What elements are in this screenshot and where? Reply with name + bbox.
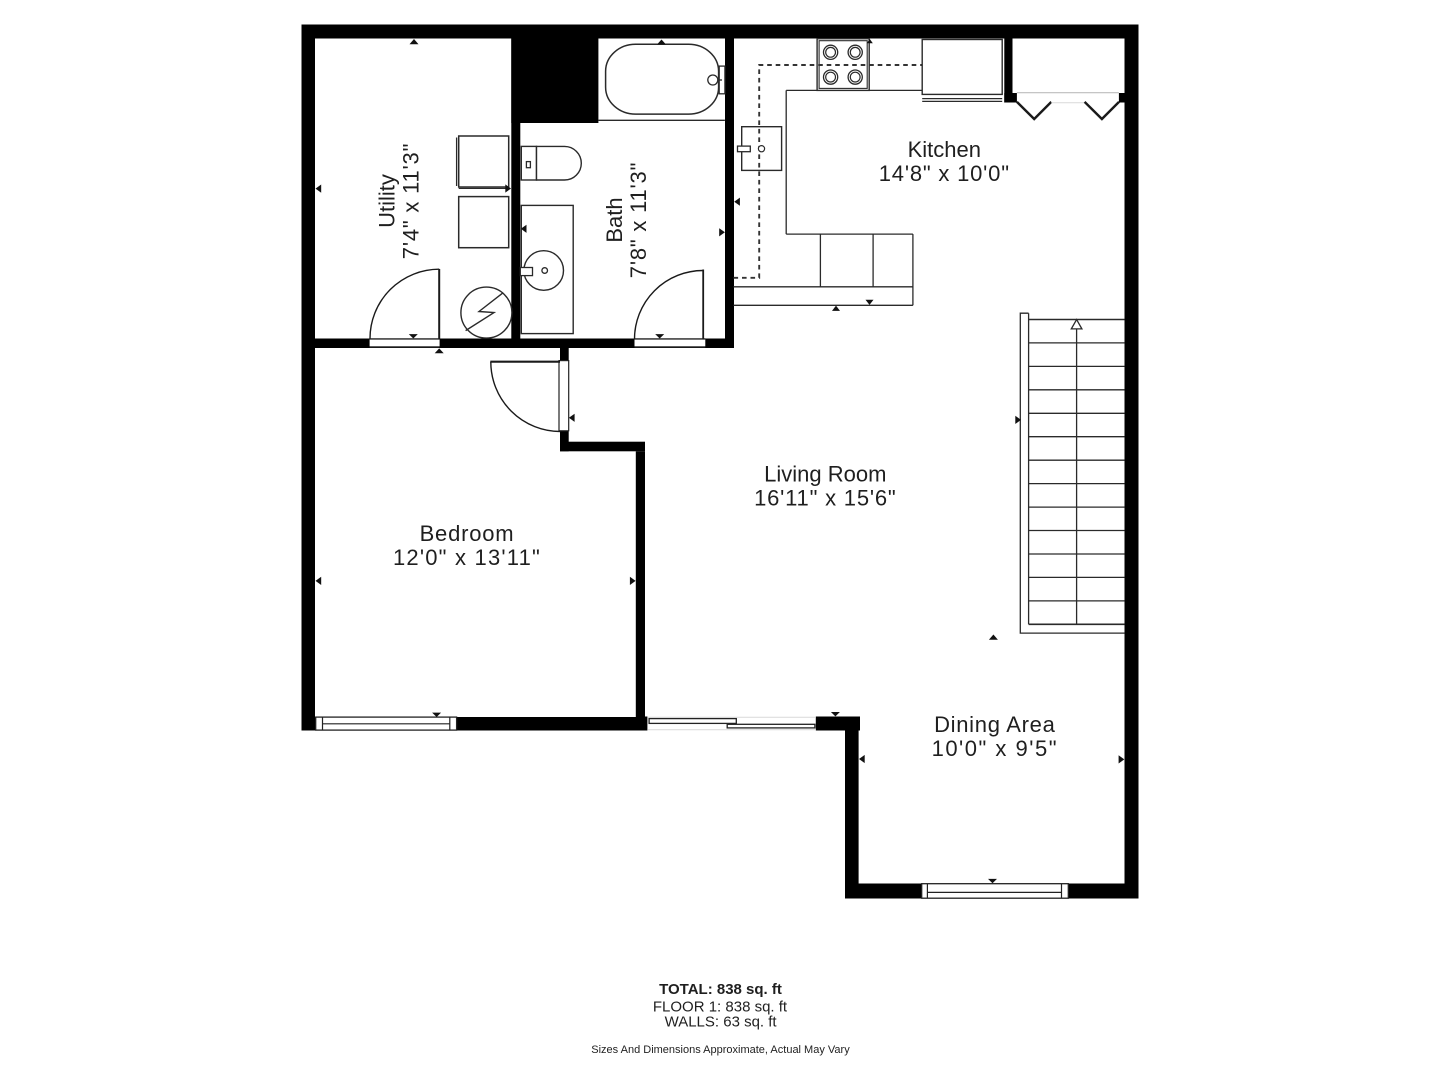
svg-text:TOTAL: 838 sq. ft: TOTAL: 838 sq. ft	[659, 981, 782, 998]
svg-text:7'4" x 11'3": 7'4" x 11'3"	[399, 143, 424, 259]
svg-text:WALLS: 63 sq. ft: WALLS: 63 sq. ft	[665, 1014, 778, 1031]
svg-text:Kitchen: Kitchen	[908, 137, 981, 162]
svg-text:Bath: Bath	[602, 197, 627, 242]
svg-text:12'0" x 13'11": 12'0" x 13'11"	[393, 545, 541, 570]
svg-text:Bedroom: Bedroom	[420, 521, 515, 546]
svg-text:14'8" x 10'0": 14'8" x 10'0"	[879, 161, 1010, 186]
svg-text:7'8" x 11'3": 7'8" x 11'3"	[626, 162, 651, 278]
svg-text:Living Room: Living Room	[764, 462, 886, 487]
svg-text:Sizes And Dimensions Approxima: Sizes And Dimensions Approximate, Actual…	[591, 1044, 850, 1056]
svg-text:Utility: Utility	[375, 174, 400, 228]
svg-text:Dining Area: Dining Area	[934, 712, 1056, 737]
svg-text:16'11" x 15'6": 16'11" x 15'6"	[754, 486, 896, 511]
svg-text:10'0" x 9'5": 10'0" x 9'5"	[932, 736, 1058, 761]
